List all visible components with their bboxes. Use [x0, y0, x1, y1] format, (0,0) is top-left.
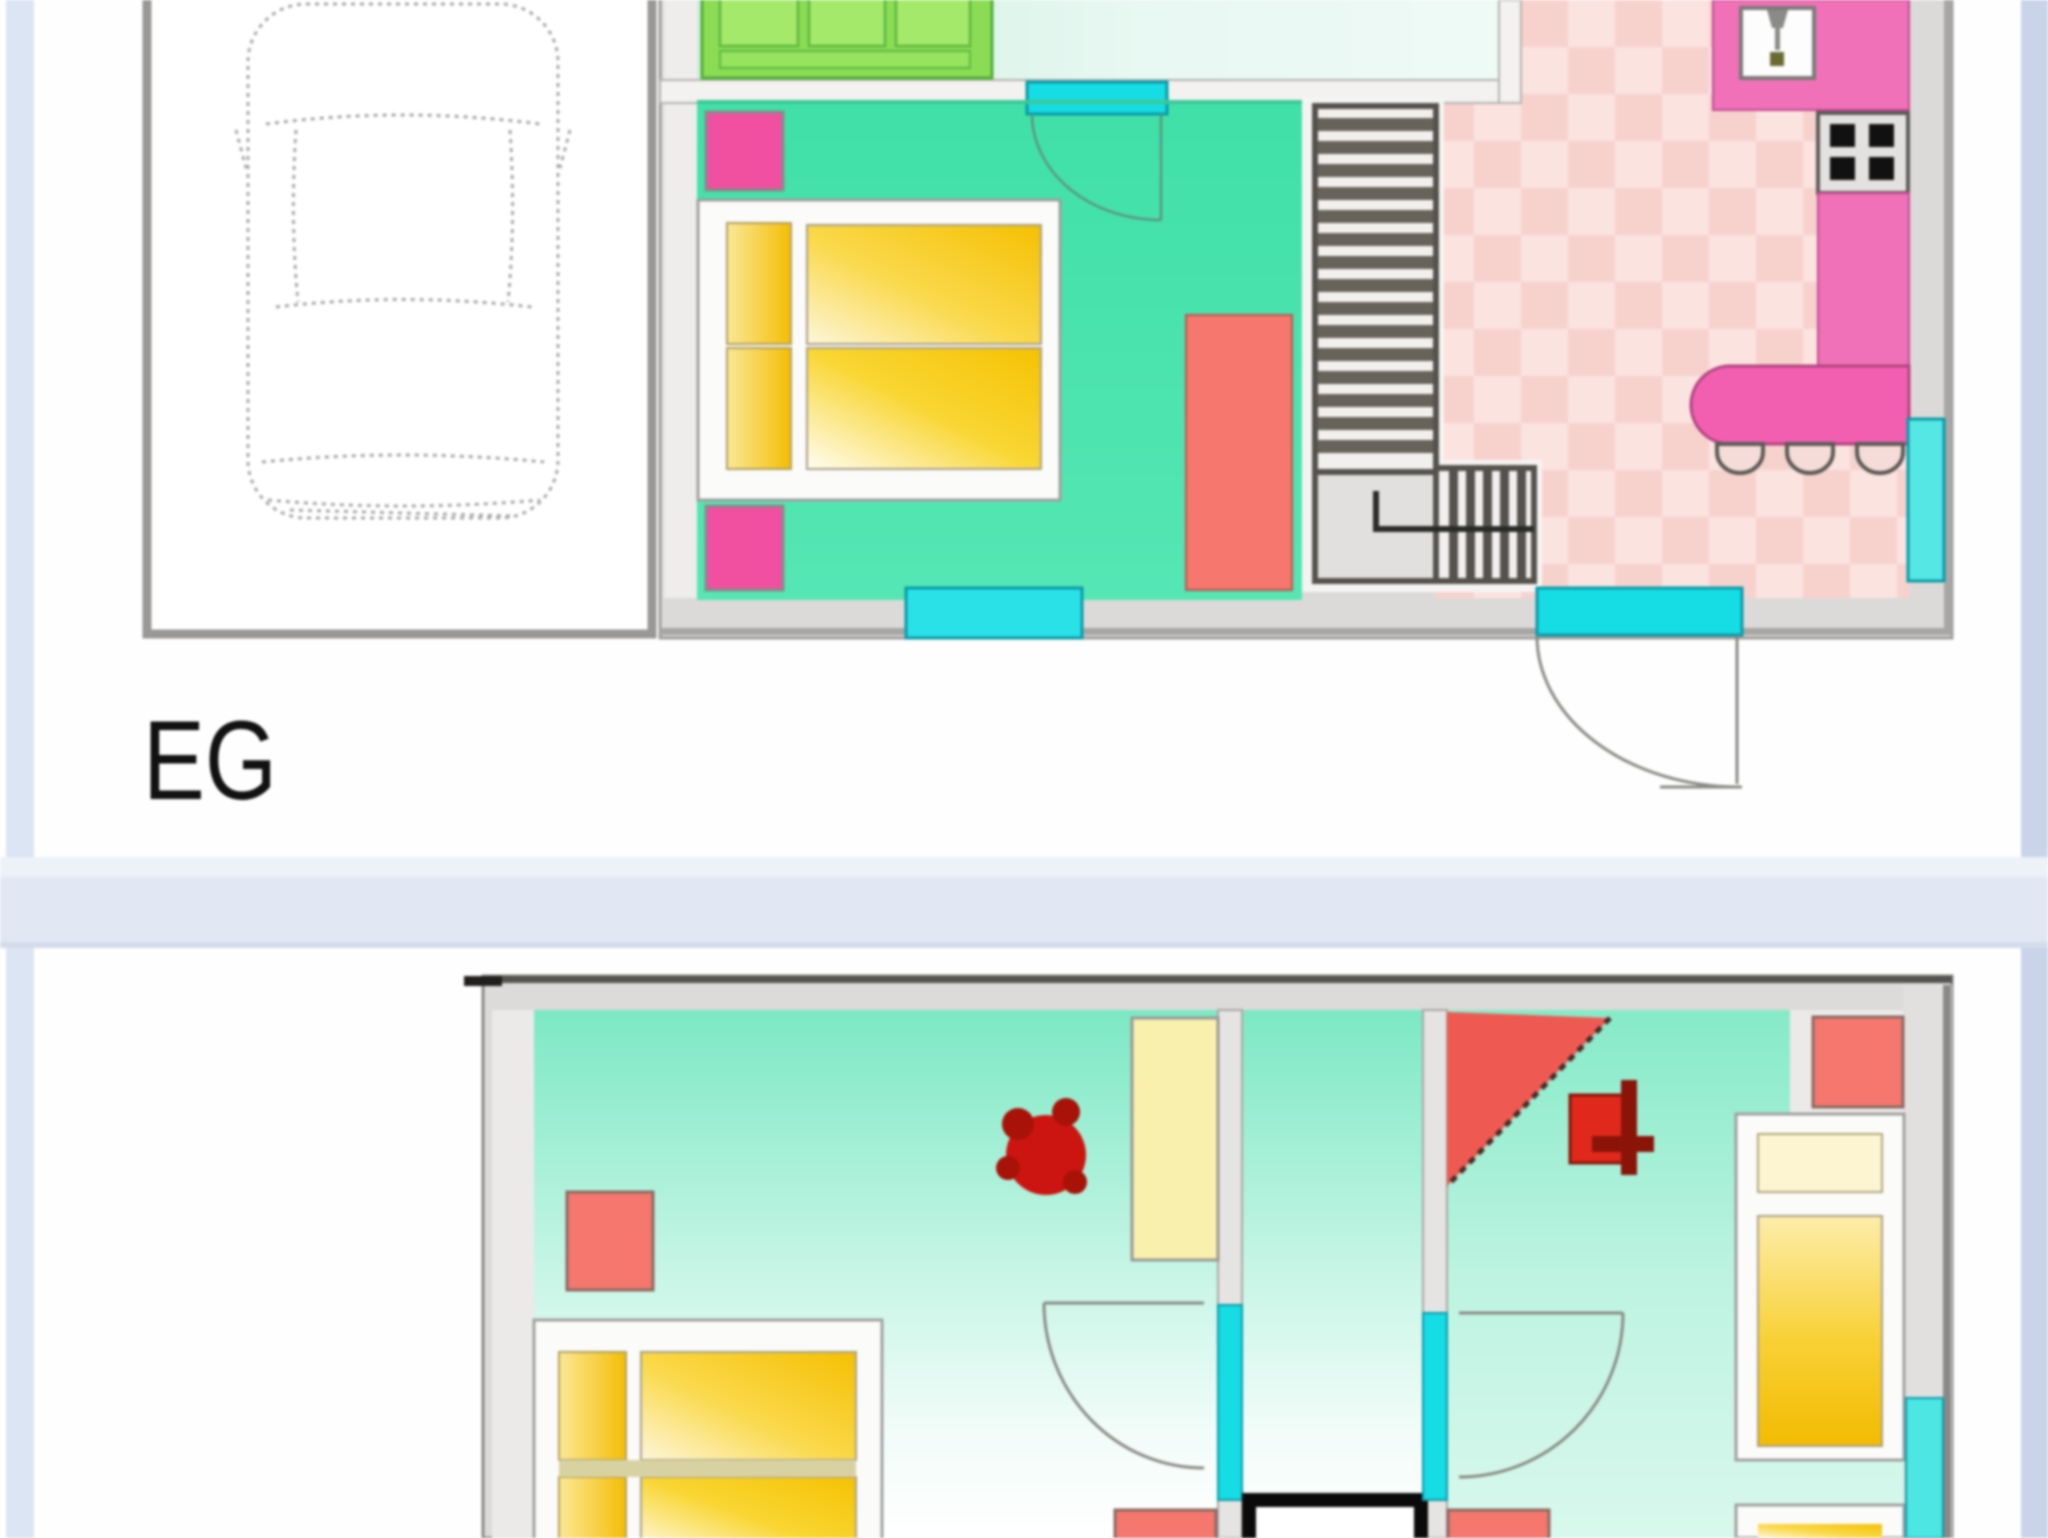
svg-text:EG: EG [143, 698, 277, 823]
